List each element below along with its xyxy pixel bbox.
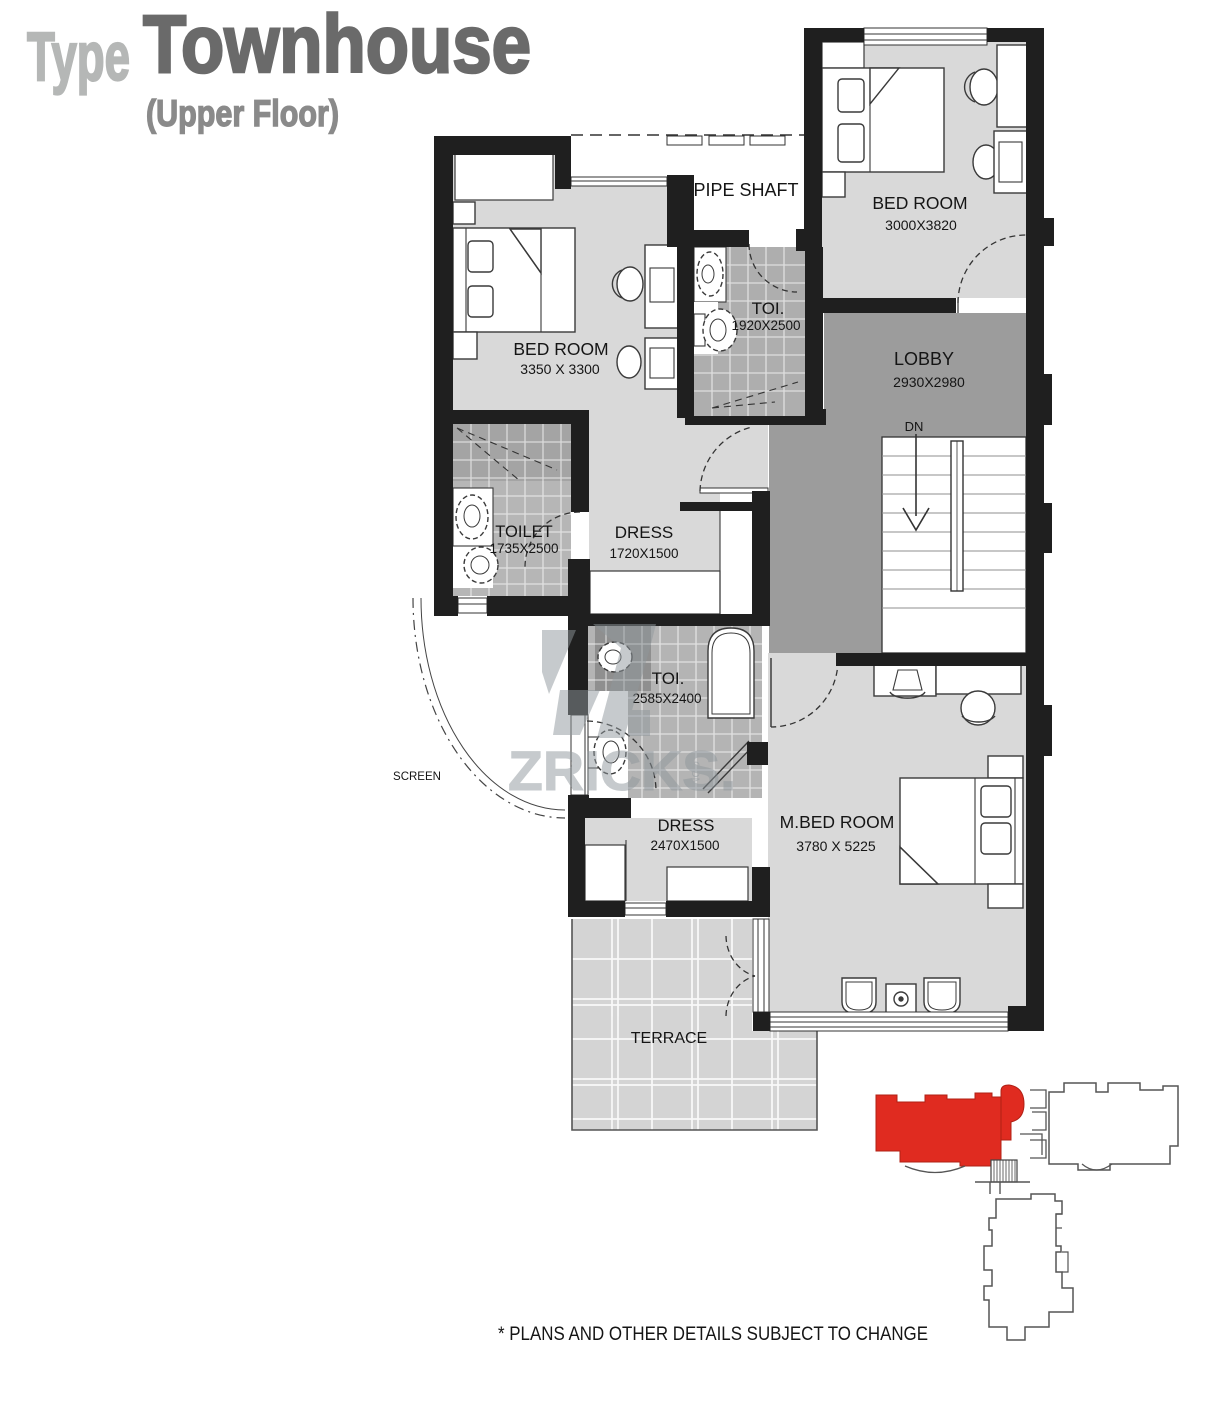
svg-text:1720X1500: 1720X1500 — [609, 546, 678, 561]
svg-text:TOI.: TOI. — [652, 669, 685, 688]
svg-text:SCREEN: SCREEN — [393, 771, 441, 783]
svg-text:TOILET: TOILET — [495, 523, 552, 541]
svg-text:Type: Type — [27, 18, 130, 95]
svg-text:* PLANS AND OTHER DETAILS SUBJ: * PLANS AND OTHER DETAILS SUBJECT TO CHA… — [498, 1323, 928, 1345]
svg-text:DRESS: DRESS — [658, 817, 715, 835]
svg-text:(Upper Floor): (Upper Floor) — [146, 93, 339, 134]
svg-text:3000X3820: 3000X3820 — [885, 217, 957, 233]
svg-text:PIPE SHAFT: PIPE SHAFT — [693, 180, 798, 200]
svg-text:TOI.: TOI. — [752, 299, 785, 318]
svg-text:TERRACE: TERRACE — [631, 1030, 707, 1047]
svg-text:LOBBY: LOBBY — [894, 349, 954, 369]
svg-text:DRESS: DRESS — [615, 523, 674, 542]
svg-text:.COM: .COM — [689, 758, 701, 787]
svg-text:1920X2500: 1920X2500 — [731, 318, 800, 333]
svg-text:2930X2980: 2930X2980 — [893, 374, 965, 390]
svg-text:DN: DN — [905, 419, 924, 434]
svg-text:2585X2400: 2585X2400 — [632, 691, 701, 706]
svg-text:1735X2500: 1735X2500 — [489, 541, 558, 556]
svg-text:3350 X 3300: 3350 X 3300 — [520, 361, 600, 377]
svg-text:BED ROOM: BED ROOM — [513, 339, 608, 359]
svg-text:2470X1500: 2470X1500 — [650, 838, 719, 853]
svg-text:3780 X 5225: 3780 X 5225 — [796, 838, 876, 854]
svg-text:BED ROOM: BED ROOM — [872, 193, 967, 213]
svg-text:M.BED ROOM: M.BED ROOM — [780, 812, 895, 832]
svg-text:Townhouse: Townhouse — [143, 0, 531, 90]
